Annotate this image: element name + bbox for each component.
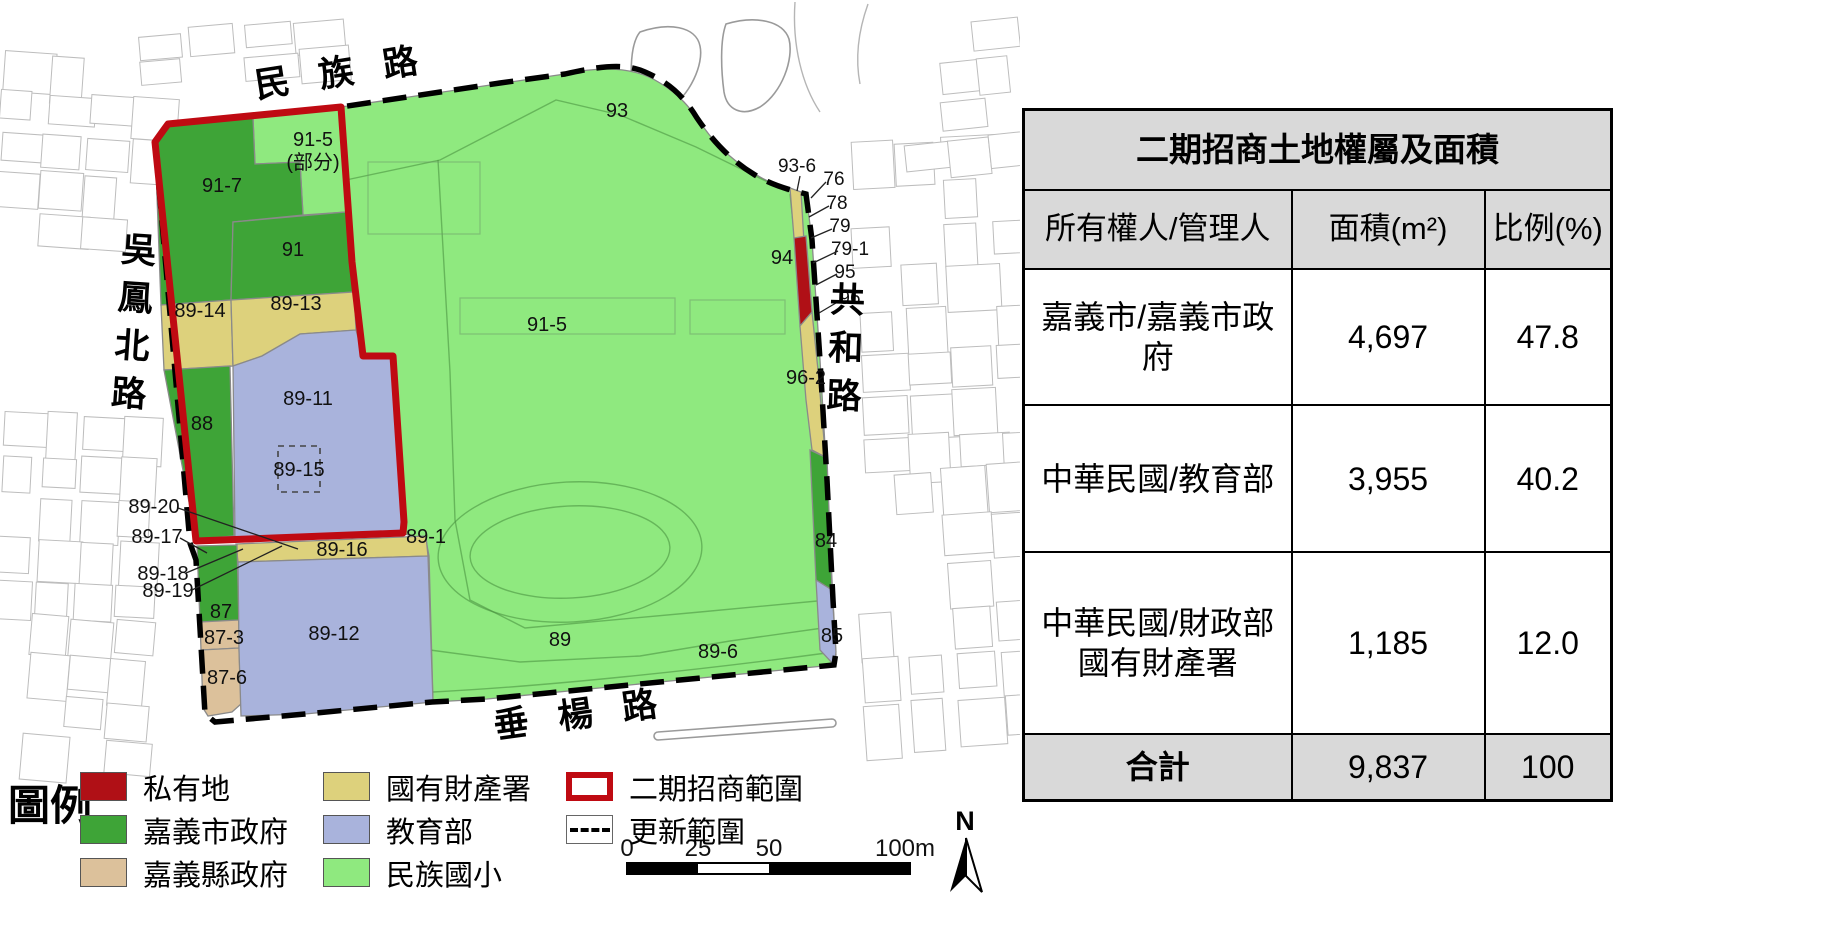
area-cell: 4,697	[1292, 269, 1485, 405]
road-label-gong-he-road: 共和路	[826, 280, 867, 416]
north-arrow	[950, 838, 982, 892]
legend-label: 民族國小	[386, 852, 502, 894]
owner-cell: 嘉義市/嘉義市政府	[1024, 269, 1292, 405]
parcel-label: 91-5	[527, 314, 567, 336]
parcel-label: 78	[826, 193, 847, 214]
road-median	[654, 719, 836, 740]
parcel-label: 89-20	[128, 496, 179, 518]
legend-swatch	[323, 772, 370, 801]
area-cell: 3,955	[1292, 405, 1485, 552]
total-label: 合計	[1024, 734, 1292, 801]
legend-label: 嘉義縣政府	[143, 852, 288, 894]
legend-item: 私有地	[80, 765, 288, 808]
legend-swatch	[323, 858, 370, 887]
parcel-label: 79-1	[831, 239, 869, 260]
parcel-label: (部分)	[286, 151, 339, 174]
parcel-label: 89-17	[131, 526, 182, 548]
parcel-label: 96-2	[786, 367, 826, 389]
pct-cell: 47.8	[1485, 269, 1612, 405]
parcel-label: 89-15	[273, 459, 324, 481]
parcel-label: 89-16	[316, 539, 367, 561]
background-cadastral-cluster	[18, 612, 163, 790]
land-ownership-table: 二期招商土地權屬及面積 所有權人/管理人 面積(m²) 比例(%) 嘉義市/嘉義…	[1022, 108, 1613, 802]
total-area: 9,837	[1292, 734, 1485, 801]
pct-cell: 12.0	[1485, 552, 1612, 734]
parcel-label: 94	[771, 247, 793, 269]
legend-item: 更新範圍	[566, 808, 803, 851]
parcel-label: 89-1	[406, 526, 446, 548]
slide-canvas: 91-5(部分)91-79189-1489-138889-1189-1589-2…	[0, 0, 1833, 943]
scale-label: 100m	[875, 835, 935, 862]
background-cadastral-cluster	[0, 409, 166, 630]
legend-swatch-dashed	[566, 815, 613, 844]
parcel-label: 89	[549, 629, 571, 651]
legend-item: 教育部	[323, 808, 531, 851]
legend-label: 二期招商範圍	[629, 766, 803, 808]
road-label-wu-feng-north-road: 吳鳳北路	[110, 230, 159, 415]
parcel-label: 79	[829, 216, 850, 237]
legend-item: 民族國小	[323, 851, 531, 894]
background-cadastral-cluster	[847, 461, 1020, 761]
parcel-label: 89-14	[174, 300, 225, 322]
table-title: 二期招商土地權屬及面積	[1024, 110, 1612, 191]
parcel-label: 87	[210, 601, 232, 623]
parcel-label: 89-12	[308, 623, 359, 645]
legend-column: 二期招商範圍更新範圍	[566, 765, 803, 851]
legend-swatch-outline	[566, 772, 613, 801]
parcel-label: 91-7	[202, 175, 242, 197]
legend-label: 嘉義市政府	[143, 809, 288, 851]
legend-swatch	[80, 858, 127, 887]
pct-cell: 40.2	[1485, 405, 1612, 552]
table-total-row: 合計 9,837 100	[1024, 734, 1612, 801]
table-row: 中華民國/教育部 3,955 40.2	[1024, 405, 1612, 552]
parcel-label: 89-13	[270, 293, 321, 315]
north-label: N	[955, 806, 975, 836]
legend-swatch	[80, 772, 127, 801]
parcel-89-11	[233, 330, 404, 538]
legend-swatch	[80, 815, 127, 844]
parcel-label: 89-6	[698, 641, 738, 663]
parcel-label: 89-19	[142, 580, 193, 602]
legend-item: 國有財產署	[323, 765, 531, 808]
label-leader-line	[811, 182, 826, 198]
background-cadastral-cluster	[892, 17, 1020, 182]
parcel-label: 85	[821, 625, 843, 647]
parcel-label: 93-6	[778, 156, 816, 177]
parcel-label: 84	[815, 530, 837, 552]
parcel-label: 88	[191, 413, 213, 435]
parcel-label: 91-5	[293, 129, 333, 151]
area-cell: 1,185	[1292, 552, 1485, 734]
legend-label: 私有地	[143, 766, 230, 808]
owner-cell: 中華民國/財政部國有財產署	[1024, 552, 1292, 734]
scale-bar	[627, 863, 910, 874]
table-row: 中華民國/財政部國有財產署 1,185 12.0	[1024, 552, 1612, 734]
parcel-label: 87-3	[204, 627, 244, 649]
label-leader-line	[797, 176, 800, 191]
legend-swatch	[323, 815, 370, 844]
legend-column: 國有財產署教育部民族國小	[323, 765, 531, 894]
parcel-label: 87-6	[207, 667, 247, 689]
parcel-label: 89-11	[283, 388, 333, 410]
parcel-label: 93	[606, 100, 628, 122]
owner-cell: 中華民國/教育部	[1024, 405, 1292, 552]
col-header-owner: 所有權人/管理人	[1024, 190, 1292, 269]
legend-label: 更新範圍	[629, 809, 745, 851]
legend-item: 嘉義市政府	[80, 808, 288, 851]
total-pct: 100	[1485, 734, 1612, 801]
legend-label: 國有財產署	[386, 766, 531, 808]
legend-item: 二期招商範圍	[566, 765, 803, 808]
table-row: 嘉義市/嘉義市政府 4,697 47.8	[1024, 269, 1612, 405]
traffic-island	[722, 20, 791, 112]
col-header-pct: 比例(%)	[1485, 190, 1612, 269]
parcel-label: 76	[823, 169, 844, 190]
col-header-area: 面積(m²)	[1292, 190, 1485, 269]
legend-label: 教育部	[386, 809, 473, 851]
background-cadastral-cluster	[846, 132, 1020, 487]
parcel-label: 91	[282, 239, 304, 261]
legend-column: 私有地嘉義市政府嘉義縣政府	[80, 765, 288, 894]
legend-item: 嘉義縣政府	[80, 851, 288, 894]
